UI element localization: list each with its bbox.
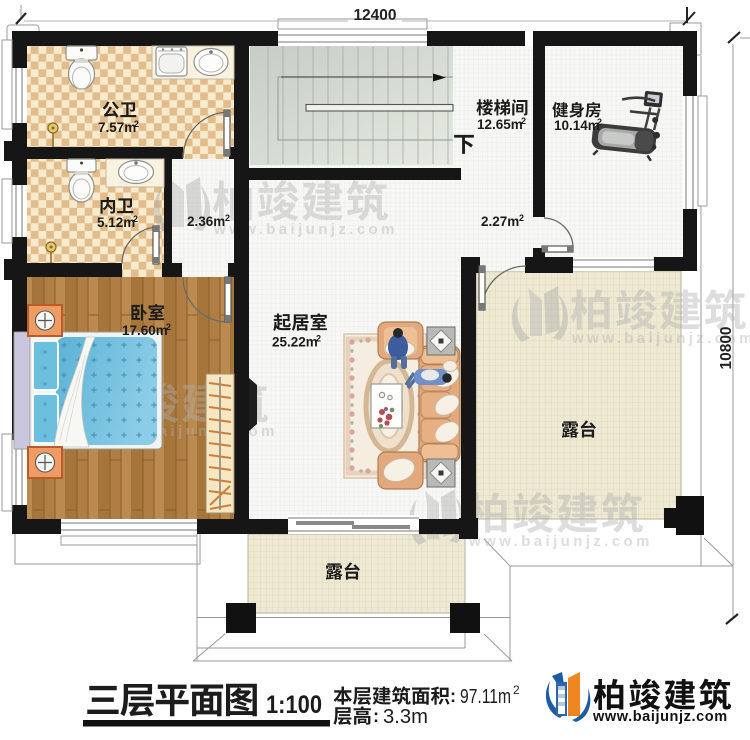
svg-text:1:100: 1:100 <box>266 691 322 719</box>
svg-text:12.65m: 12.65m <box>477 117 523 132</box>
svg-text:2: 2 <box>519 213 524 223</box>
svg-text:5.12m: 5.12m <box>97 215 135 230</box>
svg-text:2: 2 <box>225 213 230 223</box>
svg-text:2.27m: 2.27m <box>481 214 519 229</box>
svg-text:www.baijunjz.com: www.baijunjz.com <box>592 709 728 725</box>
svg-text:2: 2 <box>316 334 321 344</box>
svg-text::: : <box>373 706 379 726</box>
svg-text:2: 2 <box>134 119 139 129</box>
svg-text:2: 2 <box>597 117 602 127</box>
svg-text:2: 2 <box>133 214 138 224</box>
svg-text:3.3m: 3.3m <box>383 706 428 728</box>
svg-text:12400: 12400 <box>353 7 396 24</box>
svg-text:7.57m: 7.57m <box>98 120 136 135</box>
svg-text:25.22m: 25.22m <box>272 335 318 350</box>
svg-text:17.60m: 17.60m <box>122 323 168 338</box>
svg-text:2: 2 <box>513 683 520 697</box>
svg-text::: : <box>450 686 456 706</box>
svg-text:97.11m: 97.11m <box>460 686 511 708</box>
svg-text:2: 2 <box>166 322 171 332</box>
svg-text:2: 2 <box>521 116 526 126</box>
svg-text:10800: 10800 <box>718 326 735 369</box>
svg-text:10.14m: 10.14m <box>554 118 600 133</box>
svg-text:2.36m: 2.36m <box>187 214 225 229</box>
